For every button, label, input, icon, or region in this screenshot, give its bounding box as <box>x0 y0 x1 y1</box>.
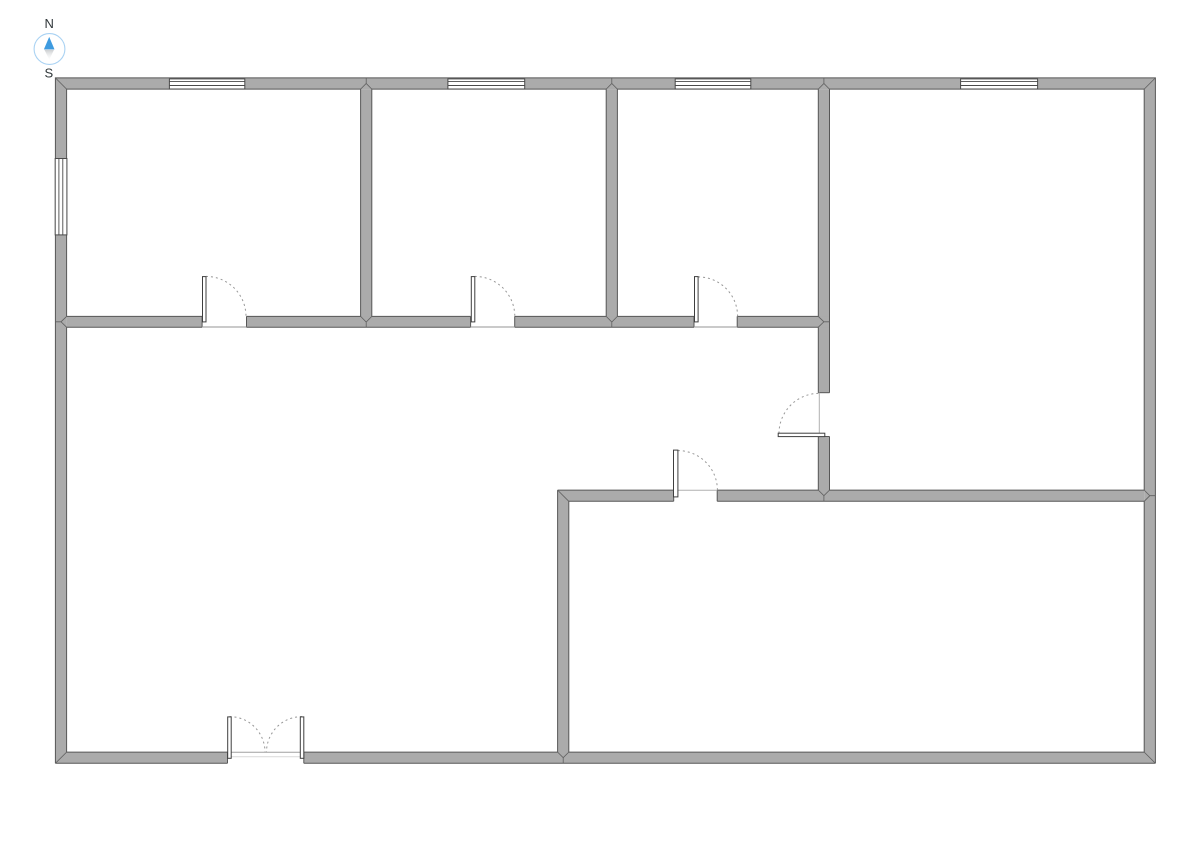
svg-text:S: S <box>44 66 53 81</box>
svg-text:N: N <box>45 16 54 31</box>
